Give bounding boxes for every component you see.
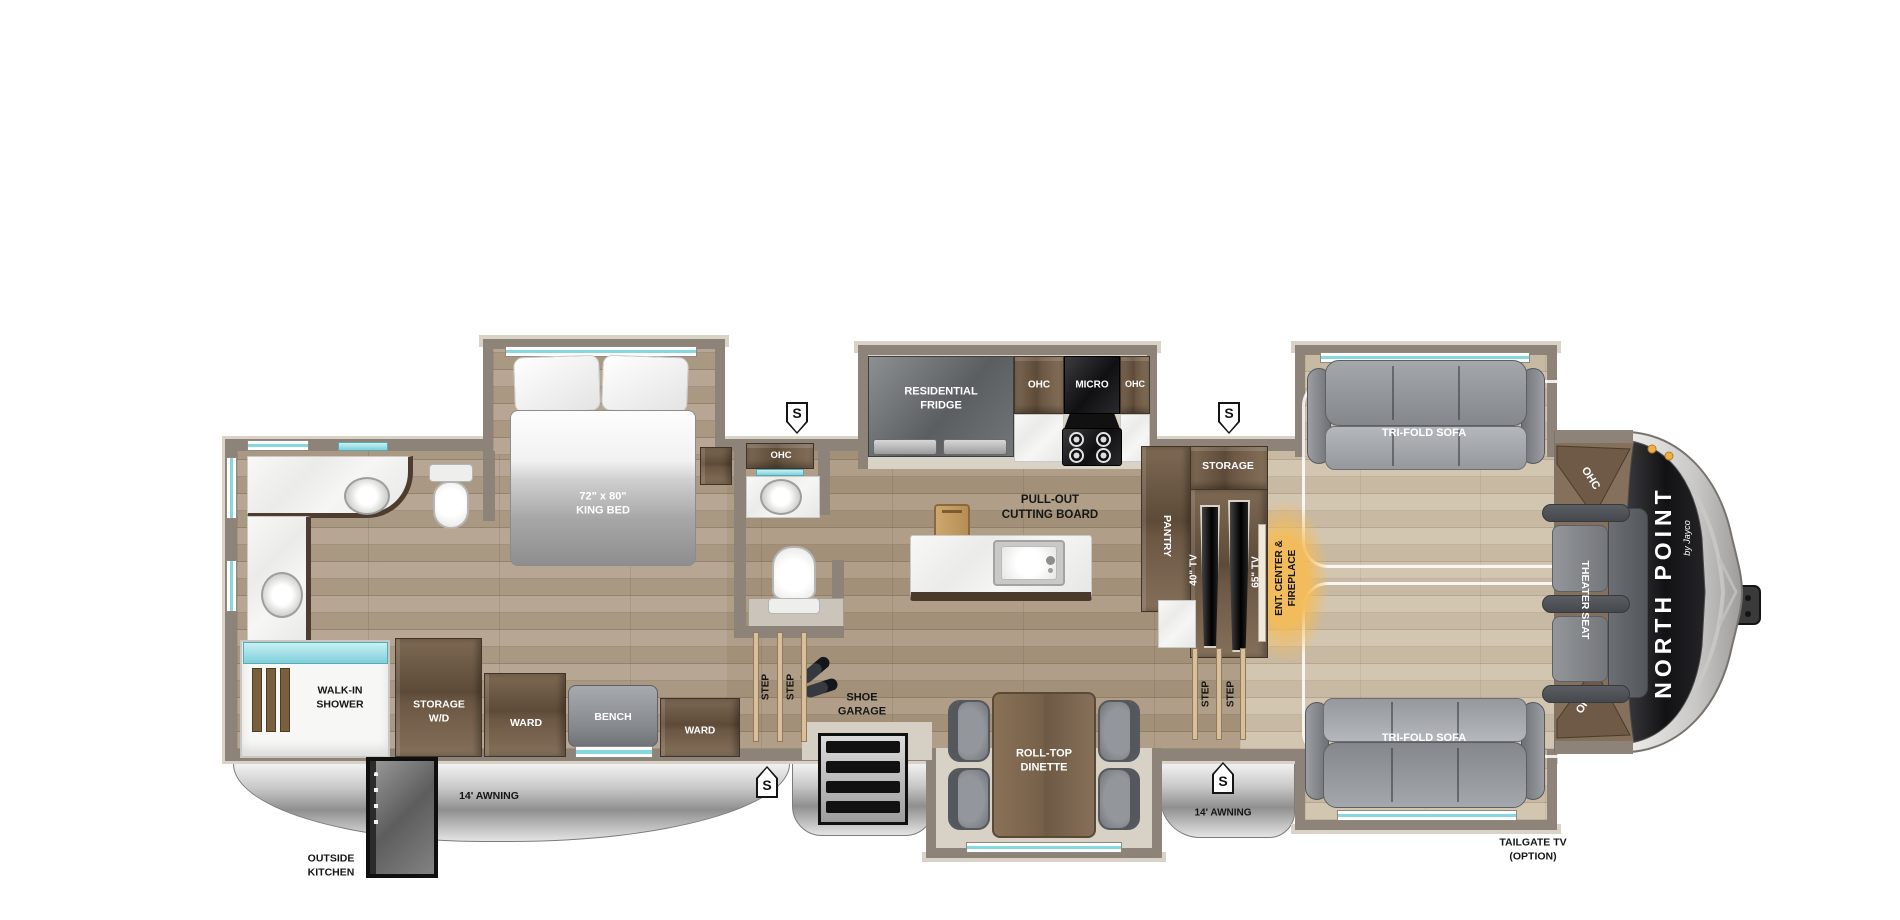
shower-shelf-3 [280, 668, 290, 732]
cutting-board-label: PULL-OUTCUTTING BOARD [1002, 493, 1098, 523]
media-storage-label: STORAGE [1202, 460, 1254, 474]
rear-toilet-tank [429, 464, 473, 482]
floorplan-canvas: NORTH POINT by Jayco OHC OHC S S S S 72"… [0, 0, 1900, 920]
shower-shelf-1 [252, 668, 262, 732]
sofa-bottom-window [1337, 810, 1517, 821]
midbath-ohc-label: OHC [770, 450, 791, 462]
tv-65-label: 65" TV [1250, 556, 1263, 587]
living-step-edge-2 [1216, 648, 1222, 740]
safety-marker: S [756, 766, 778, 798]
micro-label: MICRO [1075, 379, 1108, 392]
theater-armrest [1542, 504, 1630, 522]
bedroom-step-edge-3 [801, 632, 807, 742]
safety-marker: S [1212, 762, 1234, 794]
living-step-edge-3 [1240, 648, 1246, 740]
cutting-board-handle [942, 510, 962, 513]
shoe-garage-label: SHOEGARAGE [838, 691, 886, 720]
vanity-counter-top [247, 456, 413, 518]
left-wall-window-2 [226, 560, 237, 612]
pantry-label: PANTRY [1159, 515, 1173, 557]
midbath-wall-bottom [734, 626, 844, 638]
sofa-back [1323, 742, 1527, 808]
north-point-logo: NORTH POINT [1650, 485, 1676, 698]
fridge-door-left [873, 439, 937, 455]
ward-front-label: WARD [510, 717, 542, 731]
stair-tread-3 [826, 781, 900, 793]
outside-kitchen-latch-dots [374, 772, 378, 836]
burner-3 [1069, 448, 1084, 463]
marker-light [1665, 452, 1673, 460]
left-wall-window-1 [226, 457, 237, 519]
shower-glass [243, 642, 388, 664]
outside-kitchen-label: OUTSIDEKITCHEN [308, 852, 355, 879]
dinette-window [966, 842, 1122, 853]
midbath-toilet-bowl [772, 546, 816, 600]
island-faucet [1046, 556, 1055, 565]
tri-fold-sofa-top [1307, 360, 1545, 474]
dinette-chair-3 [1098, 700, 1140, 762]
burner-2 [1096, 432, 1111, 447]
bathroom-window-top [247, 440, 309, 451]
safety-marker: S [786, 402, 808, 434]
tv-40-label: 40" TV [1188, 554, 1201, 585]
storage-wd-label: STORAGEW/D [413, 698, 465, 725]
pantry-base-counter [1158, 600, 1196, 648]
safety-marker: S [1218, 402, 1240, 434]
bench-window [575, 746, 653, 758]
tailgate-tv-label: TAILGATE TV(OPTION) [1499, 836, 1566, 863]
step-label: STEP [785, 674, 798, 700]
stair-tread-2 [826, 761, 900, 773]
king-bed-label: 72" x 80"KING BED [576, 490, 630, 519]
sofa-top-label: TRI-FOLD SOFA [1382, 426, 1466, 440]
walk-in-shower-label: WALK-INSHOWER [316, 684, 363, 711]
bench-label: BENCH [594, 711, 631, 725]
marker-light [1648, 445, 1656, 453]
tri-fold-sofa-bottom [1305, 692, 1545, 808]
midbath-towel-bar [756, 469, 804, 476]
awning-left-label: 14' AWNING [459, 790, 519, 804]
kitchen-ohc-right-label: OHC [1125, 379, 1145, 391]
king-bed [510, 410, 696, 566]
midbath-toilet-tank [768, 598, 820, 614]
living-step-edge-1 [1192, 648, 1198, 740]
vanity-sink-1 [344, 477, 390, 515]
nightstand [700, 447, 732, 485]
dinette-chair-4 [1098, 768, 1140, 830]
dinette-chair-1 [948, 700, 990, 762]
bedroom-step-edge-1 [753, 632, 759, 742]
midbath-sink [760, 479, 802, 515]
rear-toilet-bowl [433, 481, 469, 529]
awning-right-label: 14' AWNING [1194, 807, 1251, 820]
range-hood [1064, 414, 1120, 429]
theater-seat-label: THEATER SEAT [1577, 561, 1591, 640]
pillow-right [601, 355, 689, 414]
counter-left-of-range [1014, 414, 1064, 462]
step-label: STEP [760, 674, 773, 700]
midbath-wall-left [734, 451, 746, 633]
dinette-chair-2 [948, 768, 990, 830]
stair-tread-4 [826, 801, 900, 813]
theater-armrest [1542, 685, 1630, 703]
ent-center-label: ENT. CENTER &FIREPLACE [1273, 540, 1299, 616]
burner-4 [1096, 448, 1111, 463]
step-label: STEP [1200, 681, 1213, 707]
bedroom-window [505, 346, 697, 357]
jayco-logo: by Jayco [1682, 520, 1692, 556]
theater-seat [1542, 504, 1648, 702]
burner-1 [1069, 432, 1084, 447]
bedroom-bath-wall [483, 451, 495, 521]
dinette-label: ROLL-TOPDINETTE [1016, 747, 1072, 776]
vanity-sink-2 [261, 572, 303, 618]
sofa-bottom-label: TRI-FOLD SOFA [1382, 731, 1466, 745]
pillow-left [513, 355, 601, 414]
kitchen-ohc-left-label: OHC [1028, 379, 1050, 392]
stair-tread-1 [826, 741, 900, 753]
sofa-back [1325, 360, 1527, 426]
fridge-label: RESIDENTIALFRIDGE [904, 385, 977, 414]
ward-front [484, 673, 566, 757]
step-label: STEP [1225, 681, 1238, 707]
ward-rear-label: WARD [685, 725, 716, 738]
shower-shelf-2 [266, 668, 276, 732]
bathroom-towel-bar [338, 442, 388, 451]
bedroom-step-edge-2 [777, 632, 783, 742]
fridge-door-right [943, 439, 1007, 455]
